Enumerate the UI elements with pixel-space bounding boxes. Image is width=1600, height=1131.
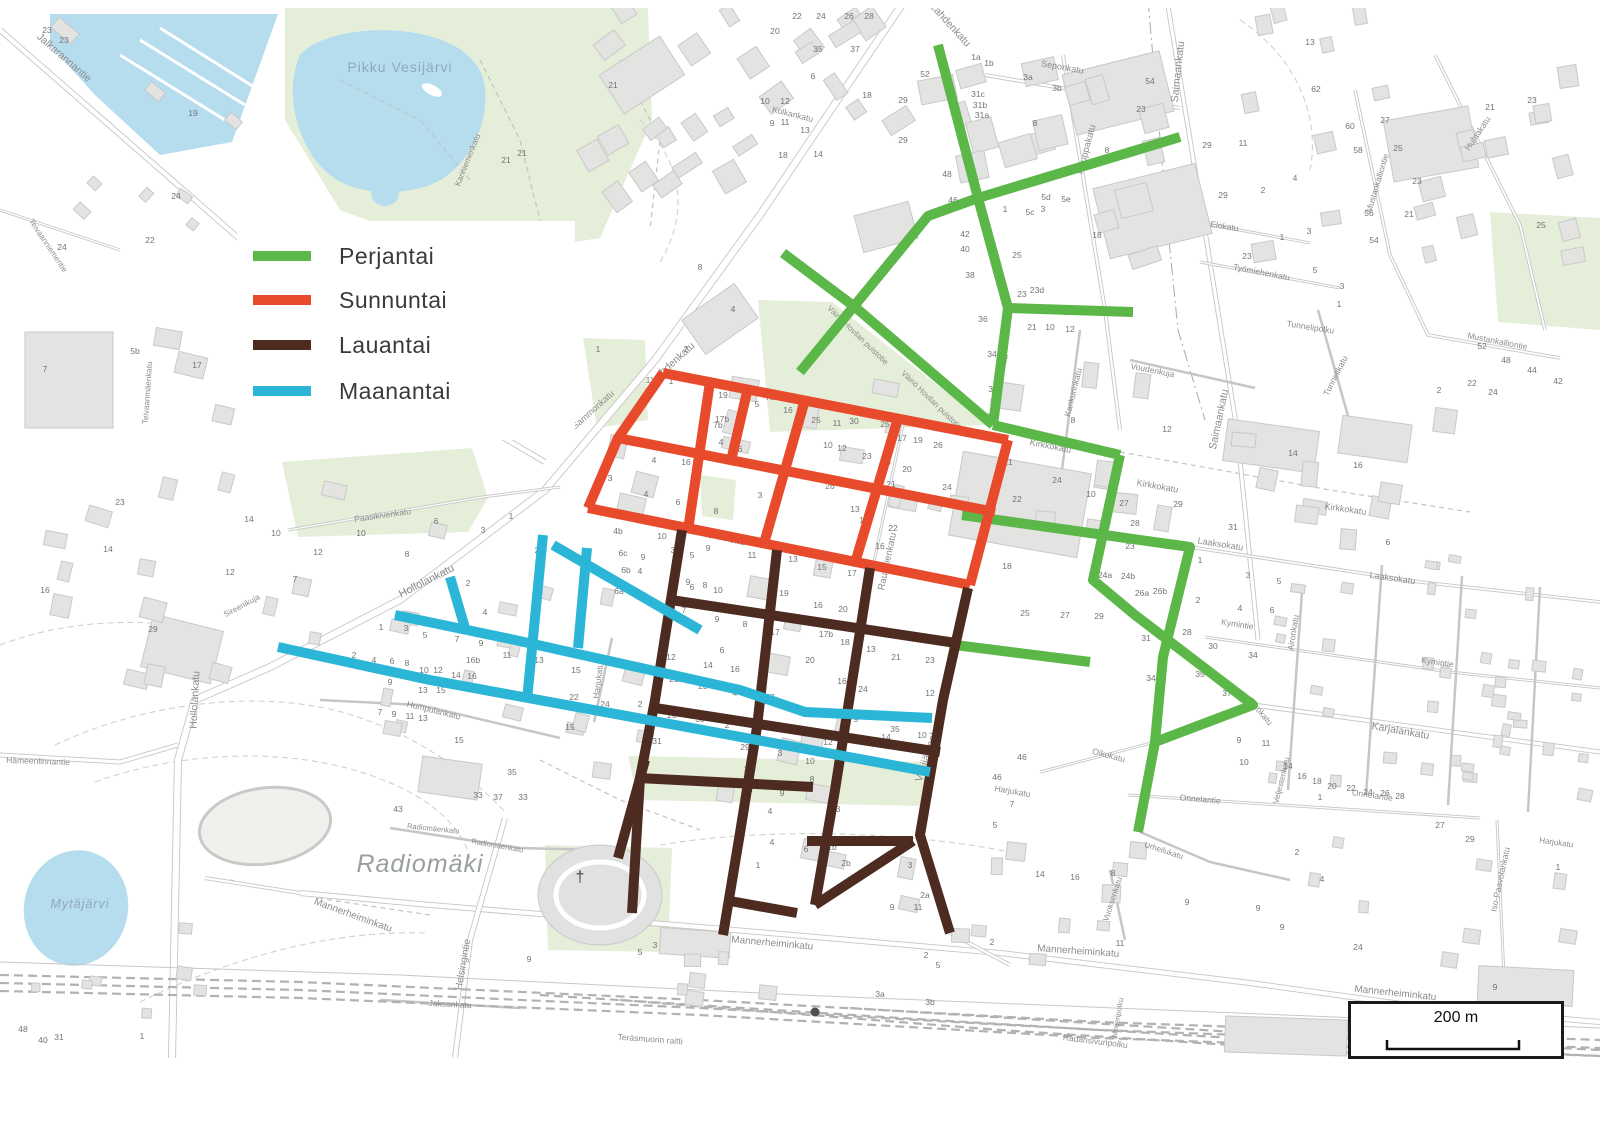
house-number: 29 xyxy=(1094,611,1104,621)
house-number: 38 xyxy=(965,270,975,280)
house-number: 1 xyxy=(1337,299,1342,309)
house-number: 21 xyxy=(1485,102,1495,112)
house-number: 12 xyxy=(666,652,676,662)
house-number: 52 xyxy=(920,69,930,79)
house-number: 8 xyxy=(1033,118,1038,128)
house-number: 22 xyxy=(792,11,802,21)
house-number: 24b xyxy=(1121,571,1135,581)
house-number: 1b xyxy=(984,58,994,68)
house-number: 26 xyxy=(933,440,943,450)
house-number: 12 xyxy=(1162,424,1172,434)
house-number: 3 xyxy=(1307,226,1312,236)
legend-label: Perjantai xyxy=(339,243,434,270)
house-number: 16 xyxy=(681,457,691,467)
house-number: 34 xyxy=(987,349,997,359)
house-number: 34 xyxy=(1146,673,1156,683)
house-number: 26b xyxy=(1153,586,1167,596)
house-number: 11 xyxy=(503,650,512,660)
house-number: 16b xyxy=(466,655,480,665)
house-number: 2a xyxy=(920,890,930,900)
legend-swatch-maanantai xyxy=(253,386,311,396)
house-number: 62 xyxy=(1311,84,1321,94)
house-number: 1 xyxy=(596,344,601,354)
house-number: 2 xyxy=(466,578,471,588)
house-number: 5c xyxy=(1026,207,1036,217)
house-number: 22 xyxy=(145,235,155,245)
house-number: 23 xyxy=(862,451,872,461)
house-number: 31 xyxy=(1228,522,1238,532)
house-number: 15 xyxy=(454,735,464,745)
house-number: 46 xyxy=(992,772,1002,782)
house-number: 40 xyxy=(38,1035,48,1045)
house-number: 6 xyxy=(434,516,439,526)
house-number: 24 xyxy=(57,242,67,252)
house-number: 35 xyxy=(813,44,823,54)
house-number: 4 xyxy=(1238,603,1243,613)
house-number: 6 xyxy=(676,497,681,507)
house-number: 30 xyxy=(849,416,859,426)
house-number: 5 xyxy=(423,630,428,640)
house-number: 10 xyxy=(713,585,723,595)
house-number: 16 xyxy=(1070,872,1080,882)
house-number: 20 xyxy=(902,464,912,474)
house-number: 16 xyxy=(40,585,50,595)
house-number: 2 xyxy=(990,937,995,947)
house-number: 17b xyxy=(819,629,833,639)
house-number: 37 xyxy=(493,792,503,802)
house-number: 8 xyxy=(743,619,748,629)
house-number: 25 xyxy=(1393,143,1403,153)
house-number: 5 xyxy=(638,947,643,957)
legend-label: Lauantai xyxy=(339,332,431,359)
house-number: 3 xyxy=(908,860,913,870)
house-number: 4 xyxy=(719,437,724,447)
house-number: 35 xyxy=(507,767,517,777)
house-number: 34 xyxy=(1248,650,1258,660)
house-number: 42 xyxy=(960,229,970,239)
house-number: 15 xyxy=(565,722,575,732)
house-number: 23 xyxy=(59,35,69,45)
house-number: 20 xyxy=(838,604,848,614)
house-number: 1 xyxy=(509,511,514,521)
house-number: 27 xyxy=(1119,498,1129,508)
house-number: 3 xyxy=(758,490,763,500)
house-number: 7 xyxy=(378,707,383,717)
house-number: 26 xyxy=(844,11,854,21)
house-number: 21 xyxy=(608,80,618,90)
legend-item-lauantai: Lauantai xyxy=(253,332,431,358)
house-number: 19 xyxy=(779,588,789,598)
legend: Perjantai Sunnuntai Lauantai Maanantai xyxy=(237,221,575,440)
house-number: 17b xyxy=(715,414,729,424)
house-number: 2 xyxy=(924,950,929,960)
legend-swatch-perjantai xyxy=(253,251,311,261)
house-number: 46 xyxy=(1017,752,1027,762)
house-number: 5e xyxy=(1061,194,1071,204)
house-number: 23 xyxy=(1527,95,1537,105)
house-number: 3b xyxy=(925,997,935,1007)
house-number: 3 xyxy=(481,525,486,535)
house-number: 6 xyxy=(390,656,395,666)
house-number: 4b xyxy=(613,526,623,536)
house-number: 4 xyxy=(770,837,775,847)
house-number: 21 xyxy=(891,652,901,662)
house-number: 6 xyxy=(811,71,816,81)
house-number: 4 xyxy=(638,566,643,576)
legend-label: Sunnuntai xyxy=(339,287,447,314)
house-number: 29 xyxy=(898,95,908,105)
house-number: 28 xyxy=(1130,518,1140,528)
house-number: 3 xyxy=(653,940,658,950)
house-number: 58 xyxy=(1353,145,1363,155)
house-number: 29 xyxy=(898,135,908,145)
house-number: 11 xyxy=(914,902,923,912)
house-number: 14 xyxy=(813,149,823,159)
house-number: 29 xyxy=(148,624,158,634)
house-number: 23 xyxy=(1412,176,1422,186)
house-number: 24 xyxy=(816,11,826,21)
house-number: 9 xyxy=(527,954,532,964)
house-number: 18 xyxy=(1092,230,1102,240)
house-number: 14 xyxy=(103,544,113,554)
scale-bar-label: 200 m xyxy=(1351,1009,1561,1027)
house-number: 23 xyxy=(115,497,125,507)
house-number: 36 xyxy=(978,314,988,324)
house-number: 1 xyxy=(1280,232,1285,242)
house-number: 2 xyxy=(1437,385,1442,395)
house-number: 9 xyxy=(1493,982,1498,992)
house-number: 23 xyxy=(1242,251,1252,261)
house-number: 17 xyxy=(847,568,857,578)
house-number: 3a xyxy=(875,989,885,999)
place-label: Radiomäki xyxy=(356,850,484,878)
house-number: 31a xyxy=(975,110,989,120)
house-number: 23 xyxy=(1017,289,1027,299)
house-number: 14 xyxy=(1288,448,1298,458)
house-number: 10 xyxy=(356,528,366,538)
house-number: 9 xyxy=(641,552,646,562)
house-number: 2 xyxy=(638,699,643,709)
house-number: 24 xyxy=(858,684,868,694)
house-number: 13 xyxy=(850,504,860,514)
house-number: 10 xyxy=(760,96,770,106)
place-label: Pikku Vesijärvi xyxy=(347,59,452,75)
house-number: 21 xyxy=(1027,322,1037,332)
house-number: 17 xyxy=(192,360,202,370)
house-number: 13 xyxy=(800,125,810,135)
house-number: 20 xyxy=(1327,781,1337,791)
house-number: 24a xyxy=(1098,570,1112,580)
house-number: 10 xyxy=(1045,322,1055,332)
house-number: 33 xyxy=(473,790,483,800)
house-number: 18 xyxy=(1312,776,1322,786)
house-number: 22 xyxy=(888,523,898,533)
house-number: 9 xyxy=(392,709,397,719)
house-number: 17 xyxy=(897,433,907,443)
house-number: 24 xyxy=(171,191,181,201)
house-number: 9 xyxy=(388,677,393,687)
house-number: 9 xyxy=(890,902,895,912)
house-number: 8 xyxy=(698,262,703,272)
house-number: 60 xyxy=(1345,121,1355,131)
house-number: 13 xyxy=(866,644,876,654)
house-number: 25 xyxy=(811,415,821,425)
station-dot-icon xyxy=(811,1008,820,1017)
house-number: 11 xyxy=(1239,138,1248,148)
house-number: 1a xyxy=(971,52,981,62)
house-number: 18 xyxy=(862,90,872,100)
house-number: 27 xyxy=(1060,610,1070,620)
house-number: 10 xyxy=(1086,489,1096,499)
house-number: 54 xyxy=(1145,76,1155,86)
house-number: 40 xyxy=(960,244,970,254)
house-number: 16 xyxy=(783,405,793,415)
house-number: 1 xyxy=(140,1031,145,1041)
house-number: 16 xyxy=(730,664,740,674)
house-number: 1 xyxy=(756,860,761,870)
house-number: 4 xyxy=(483,607,488,617)
house-number: 9 xyxy=(686,577,691,587)
house-number: 1 xyxy=(379,622,384,632)
house-number: 6b xyxy=(621,565,631,575)
house-number: 3 xyxy=(1246,570,1251,580)
house-number: 11 xyxy=(1116,938,1125,948)
legend-label: Maanantai xyxy=(339,378,451,405)
house-number: 48 xyxy=(1501,355,1511,365)
house-number: 9 xyxy=(715,614,720,624)
house-number: 3 xyxy=(608,473,613,483)
house-number: 9 xyxy=(1237,735,1242,745)
house-number: 48 xyxy=(18,1024,28,1034)
legend-item-sunnuntai: Sunnuntai xyxy=(253,287,447,313)
house-number: 24 xyxy=(1052,475,1062,485)
house-number: 25 xyxy=(1536,220,1546,230)
house-number: 11 xyxy=(833,418,842,428)
house-number: 8 xyxy=(714,506,719,516)
house-number: 7 xyxy=(293,574,298,584)
house-number: 35 xyxy=(890,724,900,734)
house-number: 22 xyxy=(1012,494,1022,504)
house-number: 6 xyxy=(1270,605,1275,615)
house-number: 28 xyxy=(864,11,874,21)
house-number: 3a xyxy=(1023,72,1033,82)
house-number: 12 xyxy=(313,547,323,557)
house-number: 25 xyxy=(1020,608,1030,618)
house-number: 29 xyxy=(1173,499,1183,509)
house-number: 28 xyxy=(1395,791,1405,801)
house-number: 26a xyxy=(1135,588,1149,598)
house-number: 11 xyxy=(1262,738,1271,748)
house-number: 31 xyxy=(652,736,662,746)
map-canvas: 2323192421212122222426282035376101291113… xyxy=(0,0,1600,1131)
house-number: 9 xyxy=(1185,897,1190,907)
house-number: 5 xyxy=(936,960,941,970)
house-number: 10 xyxy=(271,528,281,538)
house-number: 4 xyxy=(1320,874,1325,884)
house-number: 5 xyxy=(690,550,695,560)
house-number: 43 xyxy=(393,804,403,814)
house-number: 16 xyxy=(1297,771,1307,781)
house-number: 7 xyxy=(455,634,460,644)
house-number: 7 xyxy=(43,364,48,374)
house-number: 21 xyxy=(1404,209,1414,219)
house-number: 29 xyxy=(1218,190,1228,200)
house-number: 14 xyxy=(703,660,713,670)
house-number: 54 xyxy=(1369,235,1379,245)
house-number: 3 xyxy=(404,623,409,633)
house-number: 9 xyxy=(1256,903,1261,913)
house-number: 8 xyxy=(405,549,410,559)
map-figure: 2323192421212122222426282035376101291113… xyxy=(0,0,1600,1131)
house-number: 15 xyxy=(571,665,581,675)
house-number: 29 xyxy=(1465,834,1475,844)
house-number: 16 xyxy=(1353,460,1363,470)
legend-item-maanantai: Maanantai xyxy=(253,378,451,404)
house-number: 10 xyxy=(1239,757,1249,767)
house-number: 19 xyxy=(718,390,728,400)
route-perjantai xyxy=(1008,308,1133,312)
house-number: 21 xyxy=(501,155,511,165)
house-number: 10 xyxy=(657,531,667,541)
house-number: 6 xyxy=(690,582,695,592)
house-number: 13 xyxy=(1305,37,1315,47)
house-number: 2 xyxy=(1261,185,1266,195)
legend-item-perjantai: Perjantai xyxy=(253,243,434,269)
house-number: 1 xyxy=(1198,555,1203,565)
house-number: 2 xyxy=(1196,595,1201,605)
house-number: 9 xyxy=(770,118,775,128)
house-number: 10 xyxy=(805,756,815,766)
house-number: 2b xyxy=(841,858,851,868)
house-number: 3 xyxy=(1340,281,1345,291)
house-number: 21 xyxy=(517,148,527,158)
house-number: 1 xyxy=(1556,862,1561,872)
house-number: 5d xyxy=(1041,192,1051,202)
house-number: 5 xyxy=(755,399,760,409)
house-number: 31 xyxy=(1141,633,1151,643)
house-number: 15 xyxy=(817,562,827,572)
house-number: 22 xyxy=(569,692,579,702)
house-number: 14 xyxy=(451,670,461,680)
place-label: Mytäjärvi xyxy=(50,897,109,911)
house-number: 18 xyxy=(1002,561,1012,571)
house-number: 6c xyxy=(619,548,629,558)
house-number: 14 xyxy=(244,514,254,524)
house-number: 20 xyxy=(805,655,815,665)
house-number: 13 xyxy=(788,554,798,564)
house-number: 27 xyxy=(1435,820,1445,830)
house-number: 3 xyxy=(1041,204,1046,214)
house-number: 13 xyxy=(418,713,428,723)
house-number: 19 xyxy=(188,108,198,118)
house-number: 31c xyxy=(971,89,985,99)
house-number: 9 xyxy=(706,543,711,553)
house-number: 4 xyxy=(731,304,736,314)
house-number: 12 xyxy=(925,688,935,698)
house-number: 12 xyxy=(780,96,790,106)
house-number: 27 xyxy=(1380,115,1390,125)
house-number: 31 xyxy=(54,1032,64,1042)
house-number: 12 xyxy=(1065,324,1075,334)
house-number: 24 xyxy=(1488,387,1498,397)
house-number: 11 xyxy=(748,550,757,560)
house-number: 9 xyxy=(1280,922,1285,932)
house-number: 30 xyxy=(1208,641,1218,651)
house-number: 5 xyxy=(1313,265,1318,275)
house-number: 44 xyxy=(1527,365,1537,375)
house-number: 12 xyxy=(433,665,443,675)
house-number: 3b xyxy=(1052,83,1062,93)
house-number: 12 xyxy=(225,567,235,577)
house-number: 29 xyxy=(1202,140,1212,150)
house-number: 5 xyxy=(1277,576,1282,586)
house-number: 5b xyxy=(130,346,140,356)
house-number: 8 xyxy=(703,580,708,590)
house-number: 24 xyxy=(942,482,952,492)
house-number: 4 xyxy=(652,455,657,465)
house-number: 5 xyxy=(993,820,998,830)
house-number: 25 xyxy=(1012,250,1022,260)
house-number: 6 xyxy=(1386,537,1391,547)
house-number: 1 xyxy=(1003,204,1008,214)
house-number: 11 xyxy=(781,117,790,127)
scale-bar-bracket xyxy=(1361,1038,1545,1052)
house-number: 22 xyxy=(1467,378,1477,388)
house-number: 23d xyxy=(1030,285,1044,295)
house-number: 16 xyxy=(837,676,847,686)
house-number: 16 xyxy=(813,600,823,610)
house-number: 18 xyxy=(840,637,850,647)
scale-bar: 200 m xyxy=(1348,1001,1564,1059)
legend-swatch-lauantai xyxy=(253,340,311,350)
legend-swatch-sunnuntai xyxy=(253,295,311,305)
house-number: 16 xyxy=(467,671,477,681)
house-number: 37 xyxy=(850,44,860,54)
house-number: 10 xyxy=(823,440,833,450)
house-number: 23 xyxy=(1136,104,1146,114)
house-number: 8 xyxy=(405,658,410,668)
house-number: 6 xyxy=(720,645,725,655)
house-number: 19 xyxy=(913,435,923,445)
house-number: 14 xyxy=(1035,869,1045,879)
house-number: 1 xyxy=(1318,792,1323,802)
house-number: 4 xyxy=(1293,173,1298,183)
house-number: 24 xyxy=(1353,942,1363,952)
house-number: 18 xyxy=(778,150,788,160)
house-number: 2 xyxy=(1295,847,1300,857)
house-number: 9 xyxy=(479,638,484,648)
house-number: 23 xyxy=(925,655,935,665)
house-number: 48 xyxy=(942,169,952,179)
house-number: 7 xyxy=(1010,799,1015,809)
house-number: 31b xyxy=(973,100,987,110)
house-number: 4 xyxy=(768,806,773,816)
house-number: 12 xyxy=(837,443,847,453)
house-number: 4 xyxy=(644,489,649,499)
house-number: 42 xyxy=(1553,376,1563,386)
church-cross-icon: † xyxy=(576,869,585,886)
house-number: 28 xyxy=(1182,627,1192,637)
house-number: 13 xyxy=(418,685,428,695)
house-number: 11 xyxy=(406,711,415,721)
house-number: 20 xyxy=(770,26,780,36)
house-number: 33 xyxy=(518,792,528,802)
